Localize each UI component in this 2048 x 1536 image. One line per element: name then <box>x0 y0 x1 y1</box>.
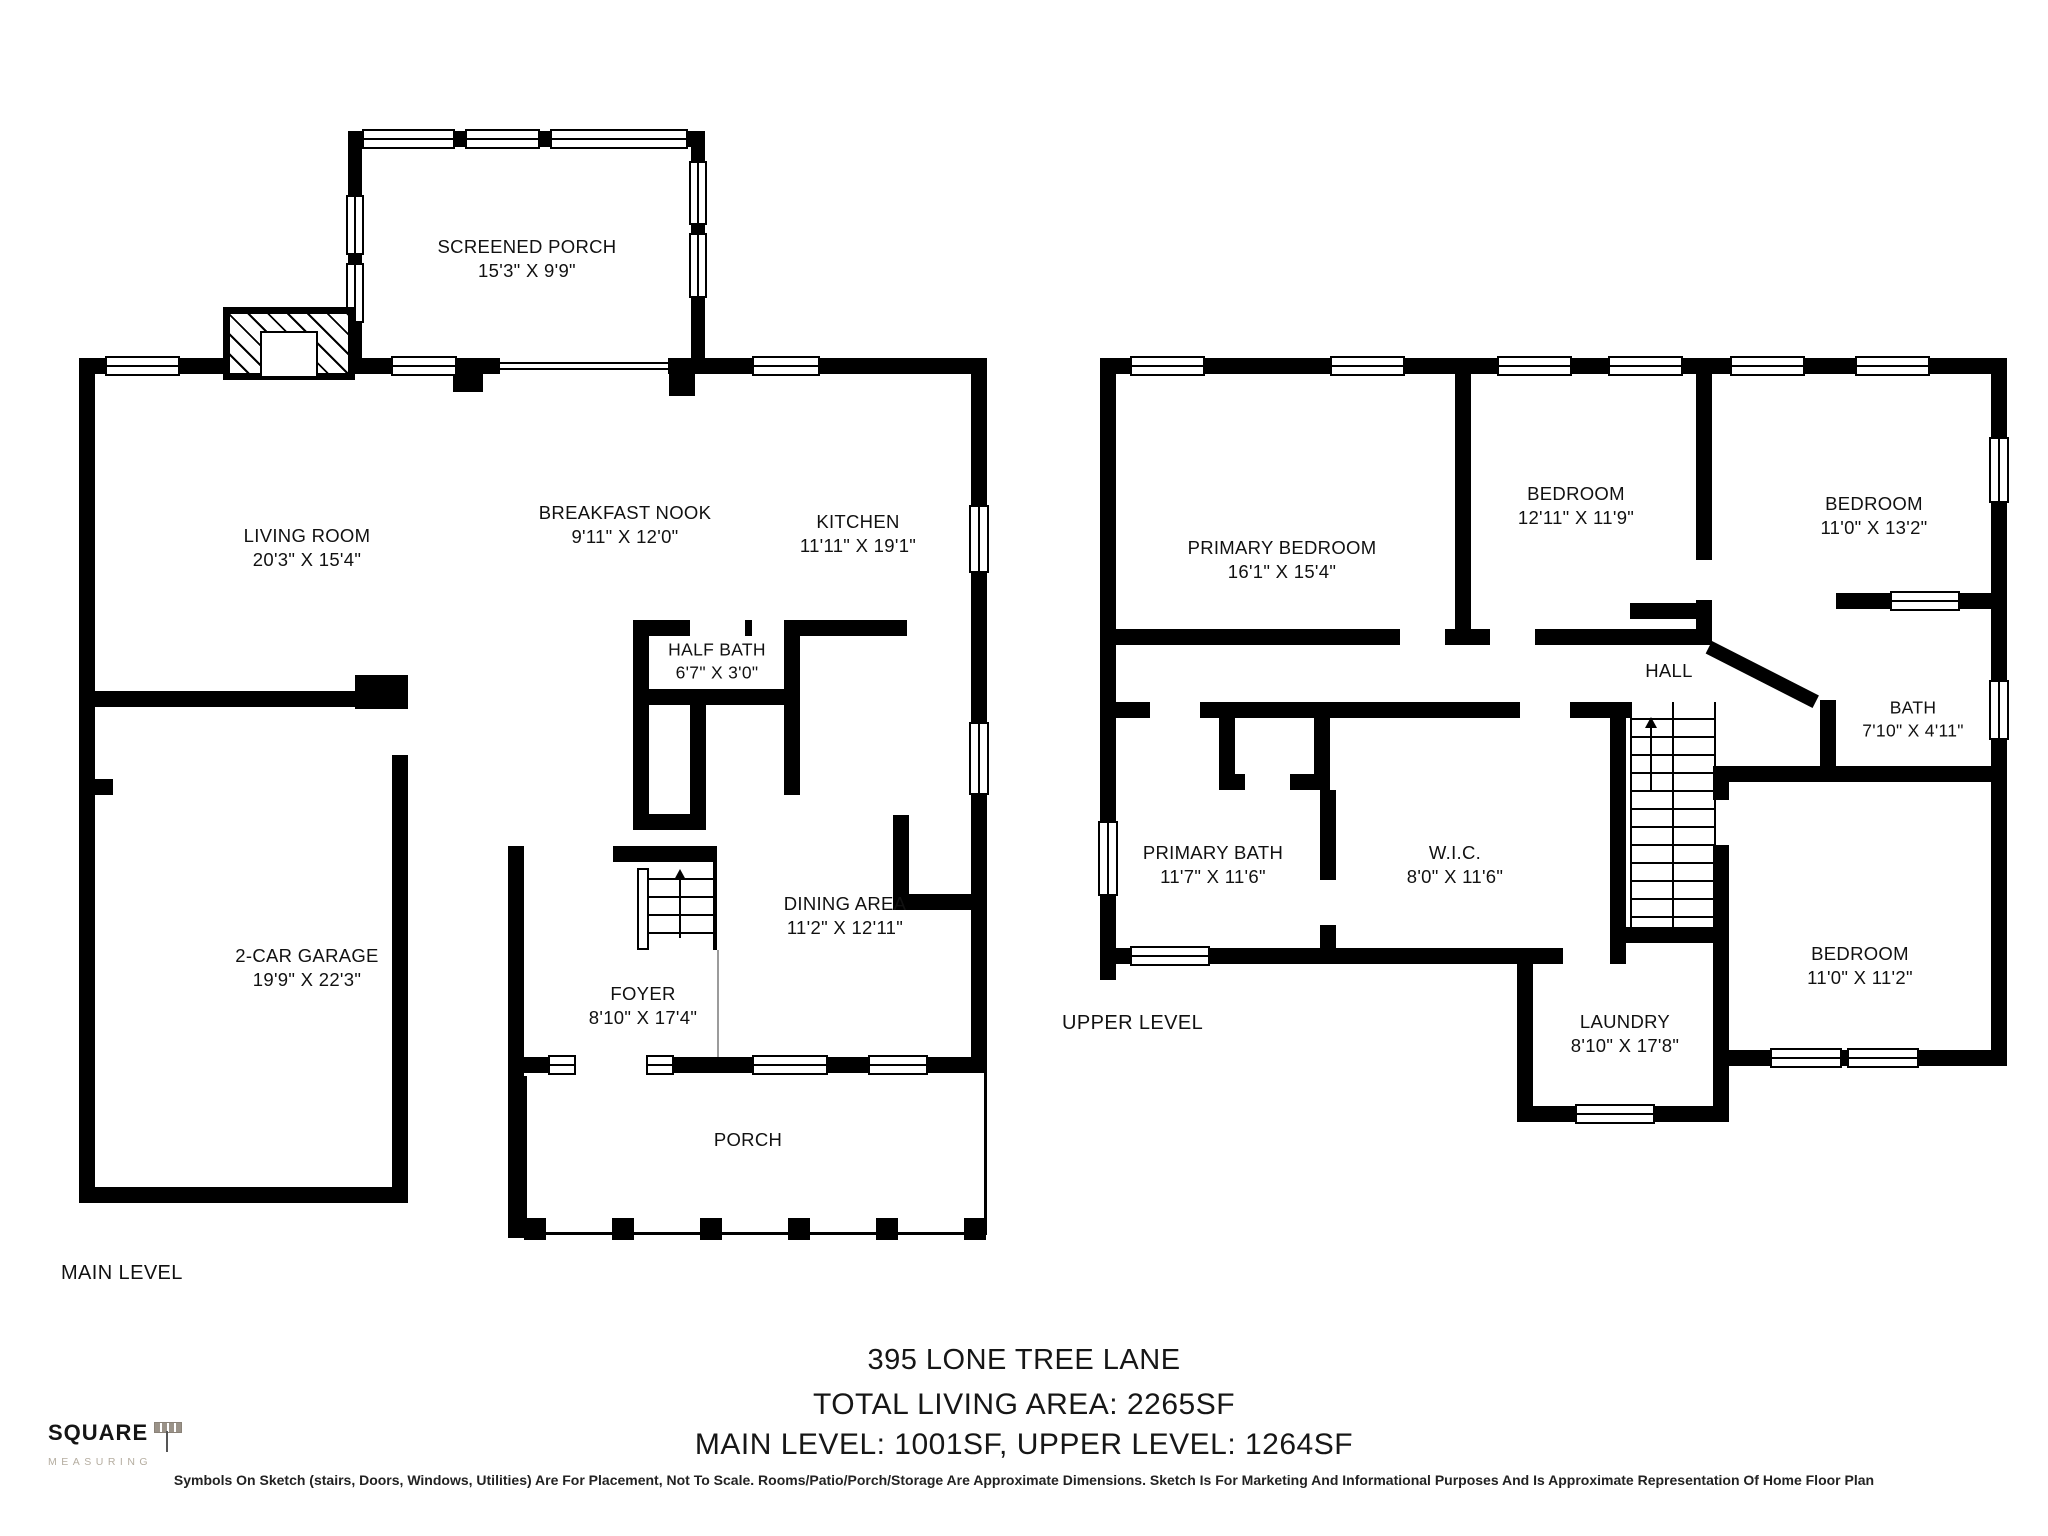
angled-wall <box>1706 641 1819 708</box>
room-label-hall: HALL <box>1645 659 1692 683</box>
logo-tagline: MEASURING <box>48 1456 184 1468</box>
wall <box>971 358 987 1073</box>
porch-step <box>453 374 483 392</box>
wall <box>348 255 362 263</box>
window <box>1770 1048 1842 1068</box>
upper-level-title: UPPER LEVEL <box>1062 1012 1203 1035</box>
wall <box>1116 702 1150 718</box>
window <box>969 505 989 573</box>
window <box>1989 437 2009 503</box>
wall <box>348 131 362 195</box>
wall <box>1116 629 1400 645</box>
wall <box>79 1187 408 1203</box>
room-name: PRIMARY BATH <box>1143 841 1283 865</box>
sliding-door <box>500 362 668 370</box>
wall <box>1219 774 1245 790</box>
room-dims: 11'2" X 12'11" <box>784 916 907 940</box>
property-address: 395 LONE TREE LANE <box>0 1344 2048 1377</box>
porch-edge <box>984 1073 987 1235</box>
wall <box>1455 629 1490 645</box>
wall <box>928 1057 987 1073</box>
total-living-area: TOTAL LIVING AREA: 2265SF <box>0 1388 2048 1422</box>
window <box>1575 1104 1655 1124</box>
wall <box>1696 600 1712 645</box>
room-name: W.I.C. <box>1407 841 1504 865</box>
window <box>1890 591 1960 611</box>
room-dims: 6'7" X 3'0" <box>668 661 766 684</box>
wall <box>1517 948 1533 1122</box>
room-name: PORCH <box>714 1128 782 1152</box>
stair-up-arrow <box>674 869 686 880</box>
window <box>646 1055 674 1075</box>
stair-rail <box>637 868 649 950</box>
window <box>1497 356 1572 376</box>
room-label-living-room: LIVING ROOM 20'3" X 15'4" <box>244 524 371 572</box>
stair-direction-line <box>1650 728 1652 790</box>
room-label-half-bath: HALF BATH 6'7" X 3'0" <box>668 638 766 684</box>
room-name: LAUNDRY <box>1571 1010 1679 1034</box>
wall <box>820 358 987 374</box>
wall <box>508 846 524 1238</box>
logo-name: SQUARE <box>48 1420 148 1446</box>
room-label-bath: BATH 7'10" X 4'11" <box>1862 696 1964 742</box>
room-dims: 8'0" X 11'6" <box>1407 865 1504 889</box>
window <box>548 1055 576 1075</box>
wall <box>392 755 408 1203</box>
wall <box>1570 702 1632 718</box>
room-name: PRIMARY BEDROOM <box>1188 536 1377 560</box>
porch-post <box>524 1218 546 1240</box>
room-dims: 7'10" X 4'11" <box>1862 719 1964 742</box>
room-label-bedroom-4: BEDROOM 11'0" X 11'2" <box>1807 942 1913 990</box>
room-dims: 11'0" X 13'2" <box>1820 516 1927 540</box>
room-name: BEDROOM <box>1807 942 1913 966</box>
porch-post <box>964 1218 986 1240</box>
window <box>689 233 707 298</box>
room-dims: 20'3" X 15'4" <box>244 548 371 572</box>
room-name: KITCHEN <box>800 510 916 534</box>
wall <box>1713 845 1729 1122</box>
room-label-porch: PORCH <box>714 1128 782 1152</box>
porch-edge <box>524 1076 527 1235</box>
room-label-screened-porch: SCREENED PORCH 15'3" X 9'9" <box>438 235 617 283</box>
room-name: FOYER <box>589 982 697 1006</box>
wall <box>1535 629 1696 645</box>
measuring-tool-icon <box>154 1420 184 1454</box>
wall <box>1445 629 1455 645</box>
window <box>362 129 455 149</box>
wall <box>828 1057 868 1073</box>
room-name: HALF BATH <box>668 638 766 661</box>
room-label-foyer: FOYER 8'10" X 17'4" <box>589 982 697 1030</box>
floor-plan-page: SCREENED PORCH 15'3" X 9'9" LIVING ROOM … <box>0 0 2048 1536</box>
wall <box>355 358 391 374</box>
room-separator-line <box>717 950 719 1057</box>
room-dims: 11'11" X 19'1" <box>800 534 916 558</box>
wall <box>1696 358 1712 560</box>
room-label-wic: W.I.C. 8'0" X 11'6" <box>1407 841 1504 889</box>
room-dims: 12'11" X 11'9" <box>1518 506 1634 530</box>
room-dims: 11'0" X 11'2" <box>1807 966 1913 990</box>
wall <box>1320 790 1336 880</box>
room-label-dining-area: DINING AREA 11'2" X 12'11" <box>784 892 907 940</box>
fireplace-firebox <box>260 331 318 378</box>
room-name: BREAKFAST NOOK <box>539 501 711 525</box>
wall <box>669 374 695 396</box>
wall <box>1713 766 1729 800</box>
room-dims: 11'7" X 11'6" <box>1143 865 1283 889</box>
wall <box>691 298 705 358</box>
window <box>1847 1048 1919 1068</box>
wall <box>691 131 705 161</box>
main-level-title: MAIN LEVEL <box>61 1262 183 1285</box>
window <box>1330 356 1405 376</box>
wall <box>1713 766 2007 782</box>
wall <box>690 705 706 814</box>
room-label-primary-bath: PRIMARY BATH 11'7" X 11'6" <box>1143 841 1283 889</box>
window <box>752 1055 828 1075</box>
stair-up-arrow <box>1645 717 1657 728</box>
room-label-garage: 2-CAR GARAGE 19'9" X 22'3" <box>235 944 378 992</box>
window <box>1098 821 1118 896</box>
room-dims: 19'9" X 22'3" <box>235 968 378 992</box>
porch-post <box>612 1218 634 1240</box>
disclaimer-text: Symbols On Sketch (stairs, Doors, Window… <box>0 1472 2048 1488</box>
wall <box>784 620 800 795</box>
room-dims: 16'1" X 15'4" <box>1188 560 1377 584</box>
wall <box>691 225 705 233</box>
room-name: LIVING ROOM <box>244 524 371 548</box>
room-label-kitchen: KITCHEN 11'11" X 19'1" <box>800 510 916 558</box>
wall <box>1533 948 1563 964</box>
wall <box>508 1057 548 1073</box>
window <box>1730 356 1805 376</box>
porch-post <box>700 1218 722 1240</box>
porch-edge <box>524 1232 987 1235</box>
room-dims: 9'11" X 12'0" <box>539 525 711 549</box>
wall <box>79 779 113 795</box>
window <box>391 356 457 376</box>
wall <box>457 358 500 374</box>
wall <box>668 358 752 374</box>
wall <box>633 705 649 814</box>
window <box>969 722 989 795</box>
porch-post <box>876 1218 898 1240</box>
wall <box>1630 603 1696 619</box>
room-label-bedroom-2: BEDROOM 12'11" X 11'9" <box>1518 482 1634 530</box>
room-dims: 8'10" X 17'4" <box>589 1006 697 1030</box>
wall <box>674 1057 752 1073</box>
window <box>1608 356 1683 376</box>
room-name: DINING AREA <box>784 892 907 916</box>
wall <box>1455 358 1471 645</box>
window <box>1130 946 1210 966</box>
wall <box>633 689 800 705</box>
window <box>105 356 180 376</box>
window <box>465 129 540 149</box>
room-name: BEDROOM <box>1820 492 1927 516</box>
wall <box>909 894 987 910</box>
room-label-laundry: LAUNDRY 8'10" X 17'8" <box>1571 1010 1679 1058</box>
window <box>550 129 688 149</box>
wall <box>1290 774 1330 790</box>
room-name: HALL <box>1645 659 1692 683</box>
room-name: BATH <box>1862 696 1964 719</box>
wall <box>1610 927 1729 943</box>
wall <box>798 620 907 636</box>
window <box>1130 356 1205 376</box>
room-label-primary-bedroom: PRIMARY BEDROOM 16'1" X 15'4" <box>1188 536 1377 584</box>
room-label-bedroom-3: BEDROOM 11'0" X 13'2" <box>1820 492 1927 540</box>
room-label-breakfast-nook: BREAKFAST NOOK 9'11" X 12'0" <box>539 501 711 549</box>
wall <box>745 620 752 636</box>
window <box>868 1055 928 1075</box>
window <box>689 161 707 225</box>
wall <box>355 675 408 709</box>
window <box>1989 680 2009 740</box>
wall <box>180 358 223 374</box>
porch-post <box>788 1218 810 1240</box>
window <box>1855 356 1930 376</box>
room-dims: 15'3" X 9'9" <box>438 259 617 283</box>
wall <box>1200 702 1520 718</box>
wall <box>79 691 360 707</box>
room-name: 2-CAR GARAGE <box>235 944 378 968</box>
window <box>346 195 364 255</box>
stair-direction-line <box>679 880 681 938</box>
room-dims: 8'10" X 17'8" <box>1571 1034 1679 1058</box>
square-measuring-logo: SQUARE MEASURING <box>48 1420 184 1468</box>
wall <box>633 814 706 830</box>
stair-center-rail <box>1672 702 1674 943</box>
window <box>752 356 820 376</box>
room-name: BEDROOM <box>1518 482 1634 506</box>
room-name: SCREENED PORCH <box>438 235 617 259</box>
level-areas: MAIN LEVEL: 1001SF, UPPER LEVEL: 1264SF <box>0 1428 2048 1462</box>
